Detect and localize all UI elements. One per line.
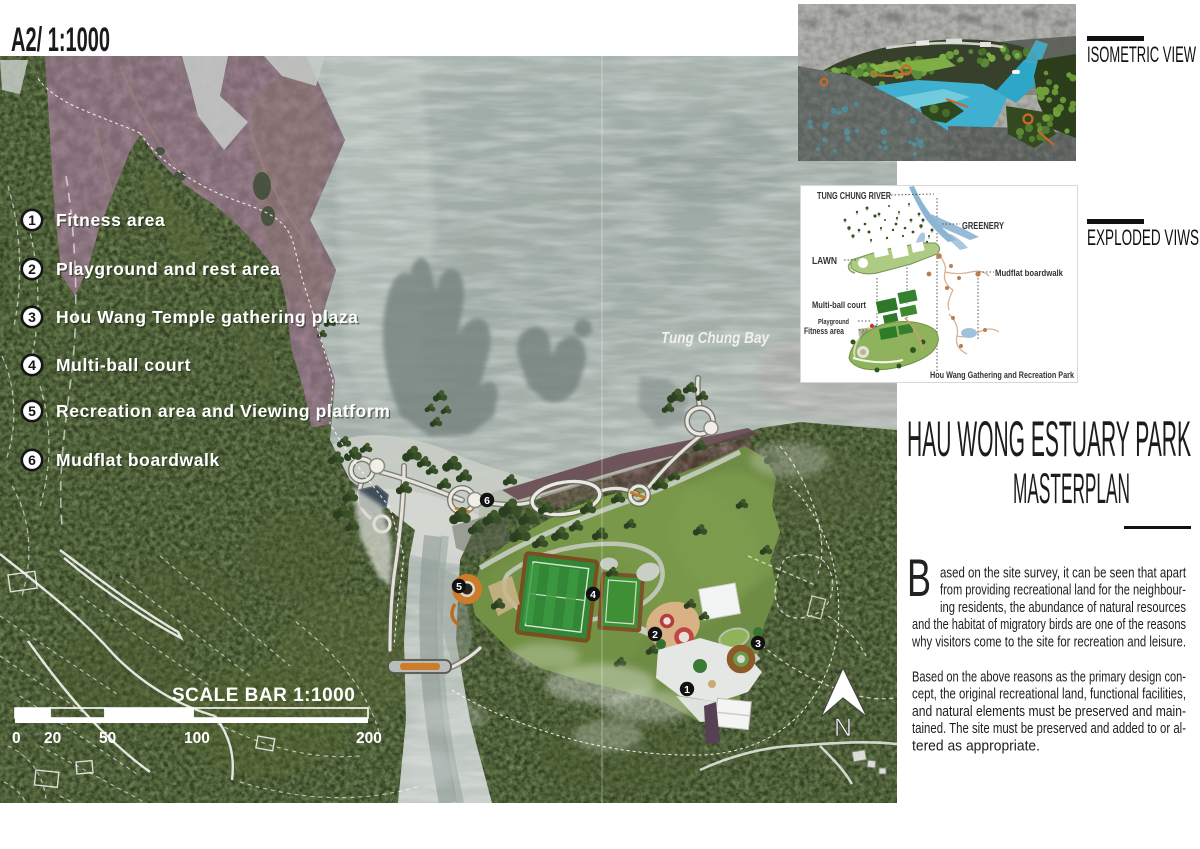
svg-text:0: 0: [12, 730, 21, 747]
svg-text:HAU WONG ESTUARY PARK: HAU WONG ESTUARY PARK: [907, 413, 1191, 467]
svg-text:Playground and rest area: Playground and rest area: [56, 259, 280, 279]
svg-text:from providing recreational la: from providing recreational land for the…: [940, 583, 1186, 599]
svg-text:4: 4: [590, 589, 596, 601]
svg-text:A2/ 1:1000: A2/ 1:1000: [11, 24, 110, 56]
svg-text:2: 2: [652, 629, 658, 641]
svg-text:2: 2: [28, 261, 36, 277]
svg-text:Recreation area and Viewing pl: Recreation area and Viewing platform: [56, 401, 390, 421]
svg-text:Hou Wang Temple gathering plaz: Hou Wang Temple gathering plaza: [56, 307, 359, 327]
svg-text:4: 4: [28, 357, 36, 373]
svg-text:3: 3: [755, 638, 761, 650]
svg-text:1: 1: [684, 684, 690, 696]
svg-text:5: 5: [28, 403, 36, 419]
svg-text:ISOMETRIC VIEW: ISOMETRIC VIEW: [1087, 42, 1196, 67]
svg-text:6: 6: [28, 452, 36, 468]
svg-text:Mudflat boardwalk: Mudflat boardwalk: [56, 450, 220, 470]
svg-text:Based on the above reasons as: Based on the above reasons as the primar…: [912, 670, 1186, 686]
svg-text:100: 100: [184, 730, 210, 747]
svg-text:5: 5: [456, 581, 462, 593]
svg-text:and the habitat of migratory b: and the habitat of migratory birds are o…: [912, 617, 1186, 633]
svg-text:3: 3: [28, 309, 36, 325]
svg-text:ing residents, the abundance o: ing residents, the abundance of natural …: [940, 600, 1186, 616]
svg-text:200: 200: [356, 730, 382, 747]
svg-text:tained. The site must be prese: tained. The site must be preserved and a…: [912, 721, 1186, 737]
svg-text:and natural elements must be p: and natural elements must be preserved a…: [912, 704, 1186, 720]
svg-text:6: 6: [484, 495, 490, 507]
svg-text:EXPLODED VIWS: EXPLODED VIWS: [1087, 225, 1199, 250]
svg-text:50: 50: [99, 730, 116, 747]
svg-text:tered as appropriate.: tered as appropriate.: [912, 738, 1040, 754]
svg-text:Multi-ball court: Multi-ball court: [812, 300, 867, 311]
svg-text:why visitors come to the site: why visitors come to the site for recrea…: [911, 634, 1186, 650]
svg-text:ased on the site survey, it ca: ased on the site survey, it can be seen …: [940, 566, 1186, 582]
svg-text:Hou Wang Gathering and Recreat: Hou Wang Gathering and Recreation Park: [930, 370, 1075, 381]
svg-text:N: N: [834, 714, 852, 742]
svg-text:1: 1: [28, 212, 36, 228]
svg-text:TUNG CHUNG RIVER: TUNG CHUNG RIVER: [817, 191, 892, 202]
svg-text:Multi-ball court: Multi-ball court: [56, 355, 191, 375]
svg-text:Playground: Playground: [818, 317, 849, 326]
svg-text:GREENERY: GREENERY: [962, 221, 1004, 232]
svg-text:Fitness area: Fitness area: [804, 326, 845, 336]
svg-text:LAWN: LAWN: [812, 255, 837, 267]
svg-text:cept, the original recreationa: cept, the original recreational land, fu…: [912, 687, 1186, 703]
svg-text:SCALE BAR 1:1000: SCALE BAR 1:1000: [172, 685, 355, 706]
svg-text:Mudflat boardwalk: Mudflat boardwalk: [995, 268, 1064, 279]
svg-text:20: 20: [44, 730, 61, 747]
svg-text:MASTERPLAN: MASTERPLAN: [1013, 465, 1130, 513]
svg-text:Tung Chung Bay: Tung Chung Bay: [661, 330, 770, 347]
svg-text:Fitness area: Fitness area: [56, 210, 165, 230]
